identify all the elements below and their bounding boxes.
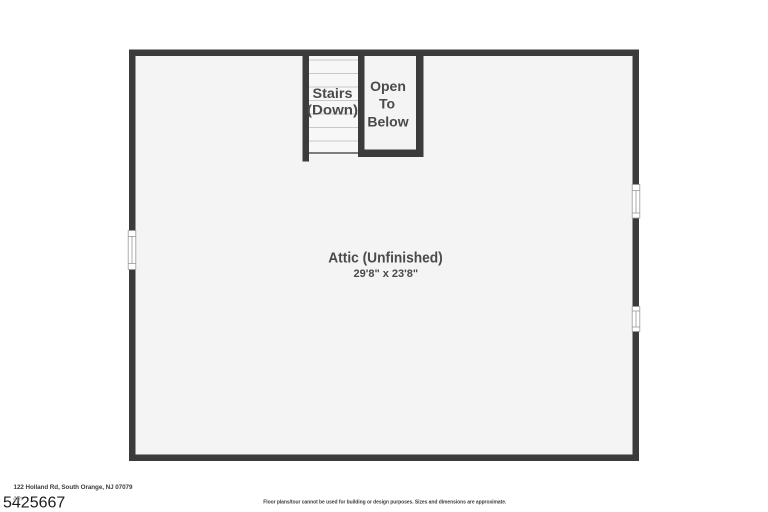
svg-text:122 Holland Rd, South Orange,: 122 Holland Rd, South Orange, NJ 07079 [14, 484, 133, 491]
svg-text:(Down): (Down) [307, 103, 358, 118]
svg-text:Below: Below [367, 114, 408, 130]
svg-text:To: To [379, 96, 395, 112]
svg-text:29'8" x 23'8": 29'8" x 23'8" [353, 268, 418, 280]
svg-text:Open: Open [370, 78, 406, 94]
svg-text:4th: 4th [13, 496, 23, 503]
svg-text:Stairs: Stairs [313, 86, 353, 101]
svg-text:Attic (Unfinished): Attic (Unfinished) [328, 251, 443, 267]
svg-text:Floor plans/tour cannot be use: Floor plans/tour cannot be used for buil… [263, 500, 507, 506]
